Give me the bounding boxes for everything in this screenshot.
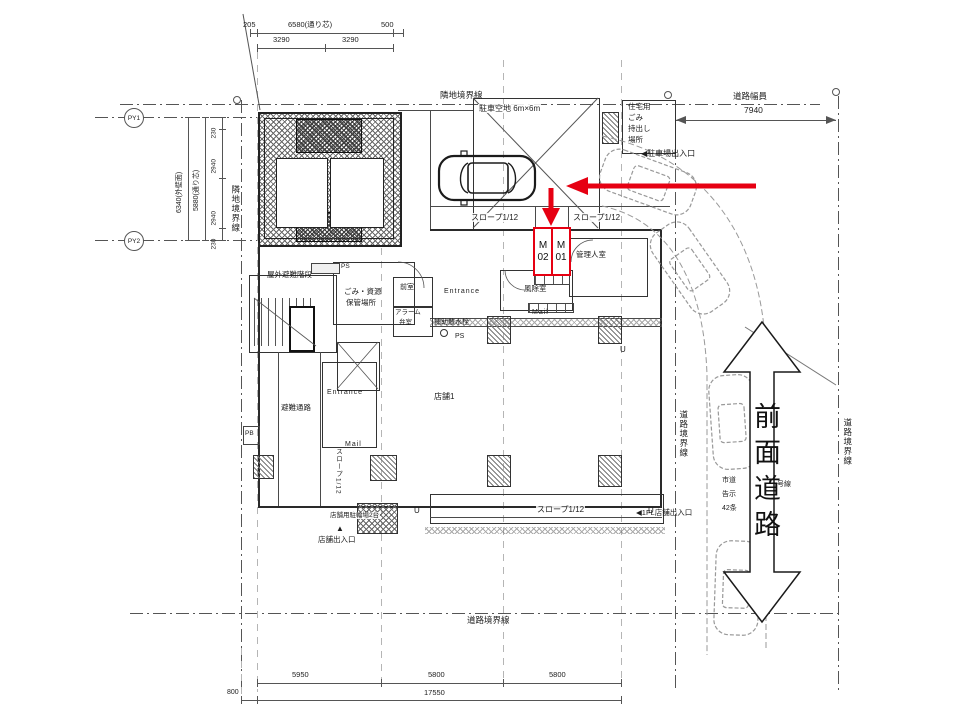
dim-230: 230 <box>211 128 218 139</box>
parking-exit-label: ◀駐車場出入口 <box>641 149 695 158</box>
manager-room-label: 管理人室 <box>576 251 606 260</box>
road-boundary-line-bottom <box>130 613 838 614</box>
adjacent-boundary-line-top <box>120 104 820 105</box>
mail-upper-label: Mail <box>532 309 549 317</box>
up-mark: U <box>648 506 654 515</box>
fl1-store-exit-label: ◀1FL店舗出入口 <box>636 509 692 518</box>
stall-m02: M02 <box>533 227 553 276</box>
anteroom <box>393 277 433 308</box>
dim-17550: 17550 <box>424 689 445 698</box>
road-boundary-line-mid <box>675 100 676 692</box>
bike-parking-label: 店舗用駐輪場2台 <box>329 512 380 519</box>
grid-line-py1 <box>95 117 258 118</box>
road-width-value: 7940 <box>744 106 763 116</box>
slope-label-right: スロープ1/12 <box>572 213 621 222</box>
adjacent-boundary-label: 隣地境界線 <box>440 91 483 101</box>
front-road-label: 前面道路 <box>746 402 785 546</box>
slope-label-bottom: スロープ1/12 <box>536 505 585 514</box>
slope-label-left: スロープ1/12 <box>470 213 519 222</box>
anteroom-label: 前室 <box>400 284 414 292</box>
parking-lift-block <box>296 119 362 153</box>
leader-line <box>745 327 836 385</box>
store-exit-marker: ▲ <box>336 524 344 533</box>
small-label-box <box>311 263 340 274</box>
sprinkler-symbol <box>440 329 448 337</box>
column <box>602 112 619 144</box>
column <box>487 316 511 344</box>
store-exit-label: 店舗出入口 <box>318 536 356 545</box>
stair-core <box>289 306 315 352</box>
entrance-upper-label: Entrance <box>444 288 480 296</box>
dim-205: 205 <box>243 21 256 30</box>
alarm-valve-label: アラーム <box>395 309 421 316</box>
column <box>598 455 622 487</box>
east-wall <box>660 229 662 508</box>
dim-3290: 3290 <box>273 36 290 45</box>
outdoor-stairs-label: 屋外避難階段 <box>267 271 312 280</box>
pb-label: PB <box>245 430 254 437</box>
dim-800: 800 <box>227 689 239 697</box>
mail-lower-label: Mail <box>345 441 362 449</box>
stall-m02-label: M02 <box>537 240 550 263</box>
entrance-lower-label: Entrance <box>327 389 363 397</box>
evac-passage-label: 避難通路 <box>281 404 311 413</box>
column <box>370 455 397 481</box>
ps-label: PS <box>455 333 464 341</box>
dim-2940: 2940 <box>211 211 218 225</box>
city-road-label: 市道 <box>722 477 736 485</box>
road-boundary-label-bottom: 道路境界線 <box>467 616 510 626</box>
stall-m01: M01 <box>551 227 571 276</box>
parking-pallet <box>276 158 328 228</box>
dimension-line <box>250 33 403 34</box>
column <box>253 455 274 479</box>
trash-storage-label: ごみ・資源 <box>344 288 382 297</box>
grid-line-py2 <box>95 240 258 241</box>
dim-3290: 3290 <box>342 36 359 45</box>
store-entrance-room <box>322 362 377 448</box>
aux-sprinkler-label: 補助散水栓 <box>434 319 469 327</box>
column <box>487 455 511 487</box>
up-mark: U <box>620 345 626 354</box>
stall-m01-label: M01 <box>555 240 568 263</box>
adjacent-boundary-label-left: 隣地境界線 <box>230 185 240 233</box>
dim-6340: 6340(外壁面) <box>176 172 184 213</box>
dim-5800: 5800 <box>428 671 445 680</box>
grid-bubble-py2: PY2 <box>124 231 144 251</box>
parking-clear-area <box>473 98 600 230</box>
grid-bubble-py1: PY1 <box>124 108 144 128</box>
adjacent-boundary-line-left <box>241 100 242 696</box>
dim-2940: 2940 <box>211 159 218 173</box>
slope-label-vertical: スロープ1/12 <box>334 448 341 495</box>
up-mark: U <box>414 506 420 515</box>
trash-house-label: 住宅用 <box>628 103 651 112</box>
ps-label-2: PS <box>341 263 350 270</box>
site-plan-drawing: 205 6580(通り芯) 500 3290 3290 6340(外壁面) 58… <box>0 0 967 720</box>
column <box>598 316 622 344</box>
dim-5950: 5950 <box>292 671 309 680</box>
windbreak-label: 風除室 <box>524 285 547 294</box>
store1-label: 店舗1 <box>434 392 454 401</box>
parking-clear-label: 駐車空地 6m×6m <box>478 104 541 113</box>
road-boundary-label-mid: 道路境界線 <box>678 410 688 458</box>
road-width-label: 道路幅員 <box>733 92 767 102</box>
dim-6580: 6580(通り芯) <box>288 21 332 30</box>
car-path-outer <box>602 136 766 650</box>
road-boundary-line-right <box>838 96 839 692</box>
dim-230: 230 <box>211 239 218 250</box>
dim-500: 500 <box>381 21 394 30</box>
parking-pallet <box>330 158 384 228</box>
dim-5800: 5800 <box>549 671 566 680</box>
dim-5880: 5880(通り芯) <box>193 170 201 211</box>
manager-room <box>569 238 648 297</box>
road-boundary-label-right: 道路境界線 <box>842 418 852 466</box>
